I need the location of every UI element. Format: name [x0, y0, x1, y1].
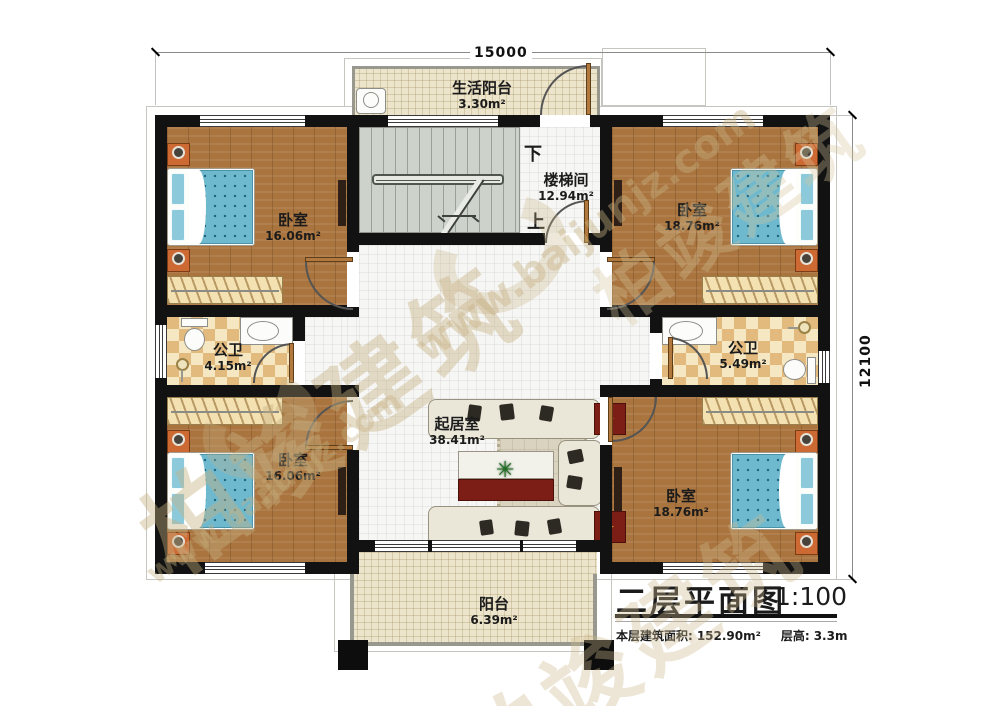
floor-height-value: 3.3m: [814, 629, 848, 643]
balcony-parapet-right: [593, 574, 597, 646]
toilet-bowl: [783, 359, 806, 380]
window-south-living-right: [523, 540, 576, 552]
lamp-icon: [172, 252, 185, 265]
stair-up-label: 上: [527, 208, 545, 234]
wall-bath-left-bottom: [155, 385, 359, 397]
lamp-icon: [172, 433, 185, 446]
floor-height-label: 层高:: [781, 629, 810, 643]
wardrobe: [702, 397, 818, 425]
door-leaf-bedroom-bl: [305, 445, 353, 450]
dimension-height-label: 12100: [858, 330, 874, 392]
room-area: 18.76m²: [664, 219, 720, 233]
window-north-bedroom-left: [200, 115, 305, 127]
wall-bath-right-top: [600, 305, 830, 317]
room-area: 16.06m²: [265, 229, 321, 243]
bed-pillow: [800, 209, 814, 241]
bed-pillow: [171, 173, 185, 205]
wall-bath-right-bottom: [600, 385, 830, 397]
room-name: 生活阳台: [452, 80, 512, 97]
bed-pillow: [800, 493, 814, 525]
sofa-cushion: [566, 475, 583, 490]
toilet-bowl: [184, 328, 205, 351]
sofa-cushion: [499, 403, 515, 421]
title-rule-thin: [615, 621, 837, 622]
room-label-bedroom-tl: 卧室 16.06m²: [265, 212, 321, 243]
room-label-bedroom-br: 卧室 18.76m²: [653, 488, 709, 519]
toilet-tank: [807, 357, 816, 384]
bed-pillow: [171, 209, 185, 241]
shower-hose: [181, 370, 183, 382]
bed-sheet: [189, 454, 206, 528]
sofa-cushion: [514, 520, 529, 536]
balcony-sliding-door: [432, 540, 520, 552]
window-south-bedroom-right: [663, 562, 763, 574]
lamp-icon: [800, 252, 813, 265]
shower-hose: [788, 327, 798, 329]
eave-outline-top-step: [602, 48, 706, 106]
bed-pillow: [171, 493, 185, 525]
washing-machine-door: [363, 92, 379, 108]
room-area: 6.39m²: [470, 613, 517, 627]
door-leaf-bedroom-tr: [607, 257, 655, 262]
life-balcony-parapet-top: [352, 66, 600, 69]
room-area: 38.41m²: [429, 433, 485, 447]
sofa-cushion: [479, 519, 494, 536]
dimension-guide: [155, 53, 156, 105]
dimension-guide: [830, 115, 852, 116]
plant-icon: ✳: [496, 458, 514, 483]
door-leaf-bath-right: [668, 337, 673, 379]
toilet-tank: [181, 318, 208, 327]
room-label-bedroom-bl: 卧室 16.06m²: [265, 452, 321, 483]
lamp-icon: [800, 433, 813, 446]
window-north-stairs: [388, 115, 498, 127]
floor-area-value: 152.90m²: [697, 629, 761, 643]
wall-notch-right: [600, 317, 612, 385]
room-name: 公卫: [719, 340, 766, 357]
lamp-icon: [172, 535, 185, 548]
room-name: 卧室: [265, 452, 321, 469]
door-opening-bath-left: [293, 341, 305, 385]
balcony-parapet-bottom: [350, 642, 597, 646]
nightstand: [795, 249, 818, 272]
bed-pillow: [800, 457, 814, 489]
wall-stair-south-stub: [588, 233, 612, 245]
room-name: 卧室: [664, 202, 720, 219]
life-balcony-parapet-right: [597, 66, 600, 115]
room-label-balcony: 阳台 6.39m²: [470, 596, 517, 627]
door-leaf-bath-left: [289, 343, 294, 383]
bed-pillow: [800, 173, 814, 205]
dimension-line-right: [852, 115, 853, 580]
nightstand: [167, 532, 190, 555]
room-label-living: 起居室 38.41m²: [429, 416, 485, 447]
shower-icon: [798, 321, 811, 334]
floor-plan: ✦ ✦ ✳: [0, 0, 1000, 706]
door-leaf-life-balcony: [586, 63, 591, 115]
door-leaf-bedroom-tl: [305, 257, 353, 262]
tv-panel: [338, 180, 346, 226]
room-area: 5.49m²: [719, 357, 766, 371]
bed-pillow: [171, 457, 185, 489]
room-label-bath-left: 公卫 4.15m²: [204, 342, 251, 373]
window-west-bath: [155, 325, 167, 378]
floor-area-label: 本层建筑面积:: [616, 629, 693, 643]
tv-panel: [614, 467, 622, 515]
window-east-bath: [818, 351, 830, 383]
bed-sheet: [779, 170, 796, 244]
room-label-stairwell: 楼梯间 12.94m²: [538, 172, 594, 203]
door-opening-bath-right: [650, 333, 662, 379]
window-north-bedroom-right: [663, 115, 763, 127]
sink-basin: [247, 321, 279, 341]
hall-notch-right: [612, 317, 653, 385]
room-label-bath-right: 公卫 5.49m²: [719, 340, 766, 371]
balcony-column-left: [338, 640, 368, 670]
door-leaf-bedroom-br: [608, 397, 613, 442]
wardrobe: [167, 276, 283, 304]
drawing-title: 二层平面图: [616, 576, 786, 621]
balcony-column-right: [584, 640, 614, 670]
dimension-guide: [830, 579, 852, 580]
wall-notch-left: [347, 317, 359, 385]
title-info-row: 本层建筑面积:152.90m²层高:3.3m: [616, 627, 851, 644]
bed-sheet: [189, 170, 206, 244]
wardrobe: [702, 276, 818, 304]
lamp-icon: [172, 146, 185, 159]
room-name: 公卫: [204, 342, 251, 359]
window-south-living-left: [375, 540, 428, 552]
room-name: 卧室: [653, 488, 709, 505]
door-leaf-stair-hall: [584, 200, 589, 243]
nightstand: [795, 430, 818, 453]
nightstand: [795, 143, 818, 166]
nightstand: [167, 249, 190, 272]
lamp-icon: [800, 535, 813, 548]
window-south-bedroom-left: [205, 562, 305, 574]
sofa-cushion: [539, 405, 554, 422]
nightstand: [795, 532, 818, 555]
tv-panel: [614, 180, 622, 226]
room-area: 3.30m²: [452, 97, 512, 111]
dimension-guide: [830, 53, 831, 105]
nightstand: [167, 430, 190, 453]
room-area: 12.94m²: [538, 189, 594, 203]
room-name: 阳台: [470, 596, 517, 613]
room-name: 起居室: [429, 416, 485, 433]
room-name: 楼梯间: [538, 172, 594, 189]
room-area: 4.15m²: [204, 359, 251, 373]
room-area: 16.06m²: [265, 469, 321, 483]
tv-panel: [338, 467, 346, 515]
dimension-width-label: 15000: [470, 45, 532, 61]
room-label-life-balcony: 生活阳台 3.30m²: [452, 80, 512, 111]
wall-stair-south: [359, 233, 545, 245]
sofa-cushion: [547, 518, 562, 535]
stair-down-label: 下: [524, 140, 542, 166]
room-area: 18.76m²: [653, 505, 709, 519]
bed-sheet: [779, 454, 796, 528]
room-name: 卧室: [265, 212, 321, 229]
room-label-bedroom-tr: 卧室 18.76m²: [664, 202, 720, 233]
nightstand: [167, 143, 190, 166]
balcony-parapet-left: [350, 574, 354, 646]
lamp-icon: [800, 146, 813, 159]
wardrobe: [167, 397, 283, 425]
drawing-scale: 1:100: [775, 582, 847, 611]
wall-bath-left-top: [155, 305, 359, 317]
life-balcony-parapet-left: [352, 66, 355, 115]
door-opening-life-balcony: [540, 115, 590, 127]
